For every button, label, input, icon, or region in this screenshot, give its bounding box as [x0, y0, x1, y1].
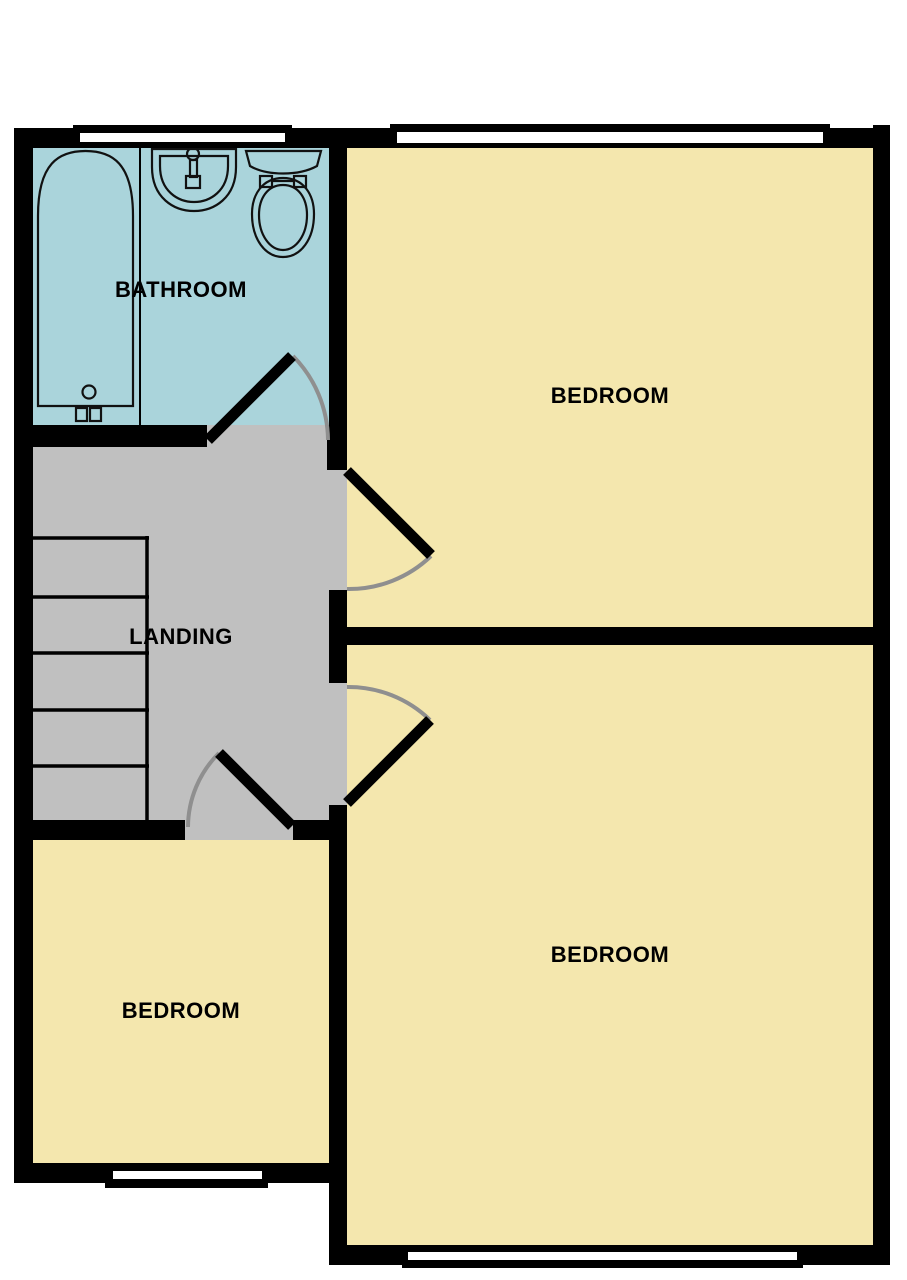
- bedroom-top-right-window: [390, 124, 830, 148]
- bedroom-bottom-right-label: BEDROOM: [551, 942, 669, 967]
- wall-landing-bottom: [14, 820, 185, 840]
- bathroom-window: [73, 125, 292, 147]
- bedroom-bottom-left-window: [105, 1163, 268, 1188]
- floorplan-canvas: BATHROOM BEDROOM LANDING BEDROOM BEDROOM: [0, 0, 907, 1280]
- bathroom-label: BATHROOM: [115, 277, 247, 302]
- wall-bottom-left-bedroom-right: [329, 805, 347, 1265]
- bedroom-bottom-right-doorway: [329, 683, 347, 805]
- wall-bathroom-bedroom-divider: [329, 128, 347, 450]
- window-glass: [408, 1252, 797, 1260]
- bedroom-bottom-left-doorway: [185, 820, 293, 840]
- wall-bedrooms-right-divider: [329, 627, 875, 645]
- bedroom-bottom-right-window: [402, 1245, 803, 1268]
- window-glass: [113, 1171, 262, 1179]
- window-glass: [397, 132, 823, 143]
- wall-bathroom-bottom: [14, 425, 207, 447]
- bedroom-top-right-label: BEDROOM: [551, 383, 669, 408]
- floorplan-page: BATHROOM BEDROOM LANDING BEDROOM BEDROOM: [0, 0, 907, 1280]
- wall-bathroom-bottom-stub: [327, 425, 347, 470]
- wall-left-exterior: [14, 128, 33, 1183]
- landing-label: LANDING: [129, 624, 233, 649]
- wall-right-exterior: [873, 125, 890, 1265]
- bedroom-bottom-left-label: BEDROOM: [122, 998, 240, 1023]
- window-glass: [80, 133, 285, 142]
- bedroom-top-right-doorway: [329, 470, 347, 590]
